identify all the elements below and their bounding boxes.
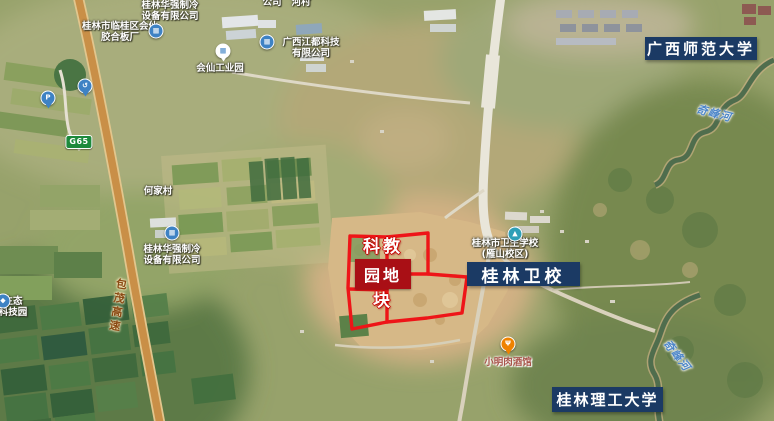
plot-label-line3: 块 bbox=[373, 291, 393, 311]
label-guilin-huaqiang-refrigeration-north[interactable]: 桂林华强制冷设备有限公司 bbox=[141, 0, 198, 22]
label-hejiacun-village[interactable]: 何家村 bbox=[144, 186, 173, 197]
company-marker[interactable]: ▦ bbox=[149, 24, 164, 39]
label-guangxi-jiangdu-tech[interactable]: 广西江都科技有限公司 bbox=[282, 37, 339, 59]
parking-marker[interactable]: P bbox=[41, 91, 56, 106]
label-guilin-huaqiang-refrigeration[interactable]: 桂林华强制冷设备有限公司 bbox=[143, 244, 200, 266]
company-marker[interactable]: ▦ bbox=[165, 226, 180, 241]
plot-label: 科教 园地 块 bbox=[355, 237, 411, 311]
plot-label-line1: 科教 bbox=[363, 237, 403, 257]
label-restaurant-text: 小明肉酒馆 bbox=[484, 357, 532, 368]
service-area-icon: ↺ bbox=[82, 83, 88, 90]
label-guilin-health-school-campus[interactable]: 桂林市卫生学校(雁山校区) bbox=[472, 238, 539, 260]
satellite-background bbox=[0, 0, 774, 421]
label-restaurant[interactable]: 小明肉酒馆 bbox=[484, 357, 532, 368]
company-icon: ▦ bbox=[264, 39, 271, 46]
label-hejiacun-village-text: 何家村 bbox=[144, 186, 173, 197]
label-guilin-health-school-campus-text: (雁山校区) bbox=[472, 249, 539, 260]
label-guilin-huaqiang-refrigeration-text: 设备有限公司 bbox=[143, 255, 200, 266]
label-company-partial[interactable]: 公司 bbox=[262, 0, 281, 8]
label-guilin-health-school-campus-text: 桂林市卫生学校 bbox=[472, 238, 539, 249]
label-guangxi-jiangdu-tech-text: 有限公司 bbox=[282, 48, 339, 59]
company-icon: ▦ bbox=[153, 28, 160, 35]
label-lingui-plywood-factory[interactable]: 桂林市临桂区会仙胶合板厂 bbox=[82, 21, 158, 43]
g65-expressway-shield: G65 bbox=[65, 135, 92, 149]
label-eco-tech-park-partial-text: 科技园 bbox=[0, 307, 27, 318]
callout-guangxi-normal-university: 广西师范大学 bbox=[645, 37, 757, 60]
label-guangxi-jiangdu-tech-text: 广西江都科技 bbox=[282, 37, 339, 48]
label-hecun-partial[interactable]: 河村 bbox=[291, 0, 310, 8]
eco-park-icon: ◆ bbox=[0, 298, 5, 305]
company-marker[interactable]: ▦ bbox=[260, 35, 275, 50]
label-guilin-huaqiang-refrigeration-text: 桂林华强制冷 bbox=[143, 244, 200, 255]
label-hecun-partial-text: 河村 bbox=[291, 0, 310, 8]
annotated-satellite-map: 科教 园地 块 桂林华强制冷设备有限公司公司河村桂林市临桂区会仙胶合板厂广西江都… bbox=[0, 0, 774, 421]
label-guilin-huaqiang-refrigeration-north-text: 桂林华强制冷 bbox=[141, 0, 198, 11]
school-icon: ▲ bbox=[512, 231, 517, 238]
industrial-park-icon: ▦ bbox=[220, 48, 227, 55]
plot-label-box: 园地 bbox=[355, 259, 411, 289]
service-area-marker[interactable]: ↺ bbox=[78, 79, 93, 94]
label-lingui-plywood-factory-text: 胶合板厂 bbox=[82, 32, 158, 43]
restaurant-icon: Ψ bbox=[505, 341, 511, 348]
industrial-park-marker[interactable]: ▦ bbox=[216, 44, 231, 59]
school-marker[interactable]: ▲ bbox=[508, 227, 523, 242]
restaurant-marker[interactable]: Ψ bbox=[501, 337, 516, 352]
company-icon: ▦ bbox=[169, 230, 176, 237]
callout-guilin-health-school: 桂林卫校 bbox=[467, 262, 580, 286]
parking-icon: P bbox=[45, 95, 50, 102]
callout-guilin-tech-university: 桂林理工大学 bbox=[552, 387, 663, 412]
label-lingui-plywood-factory-text: 桂林市临桂区会仙 bbox=[82, 21, 158, 32]
label-company-partial-text: 公司 bbox=[262, 0, 281, 8]
